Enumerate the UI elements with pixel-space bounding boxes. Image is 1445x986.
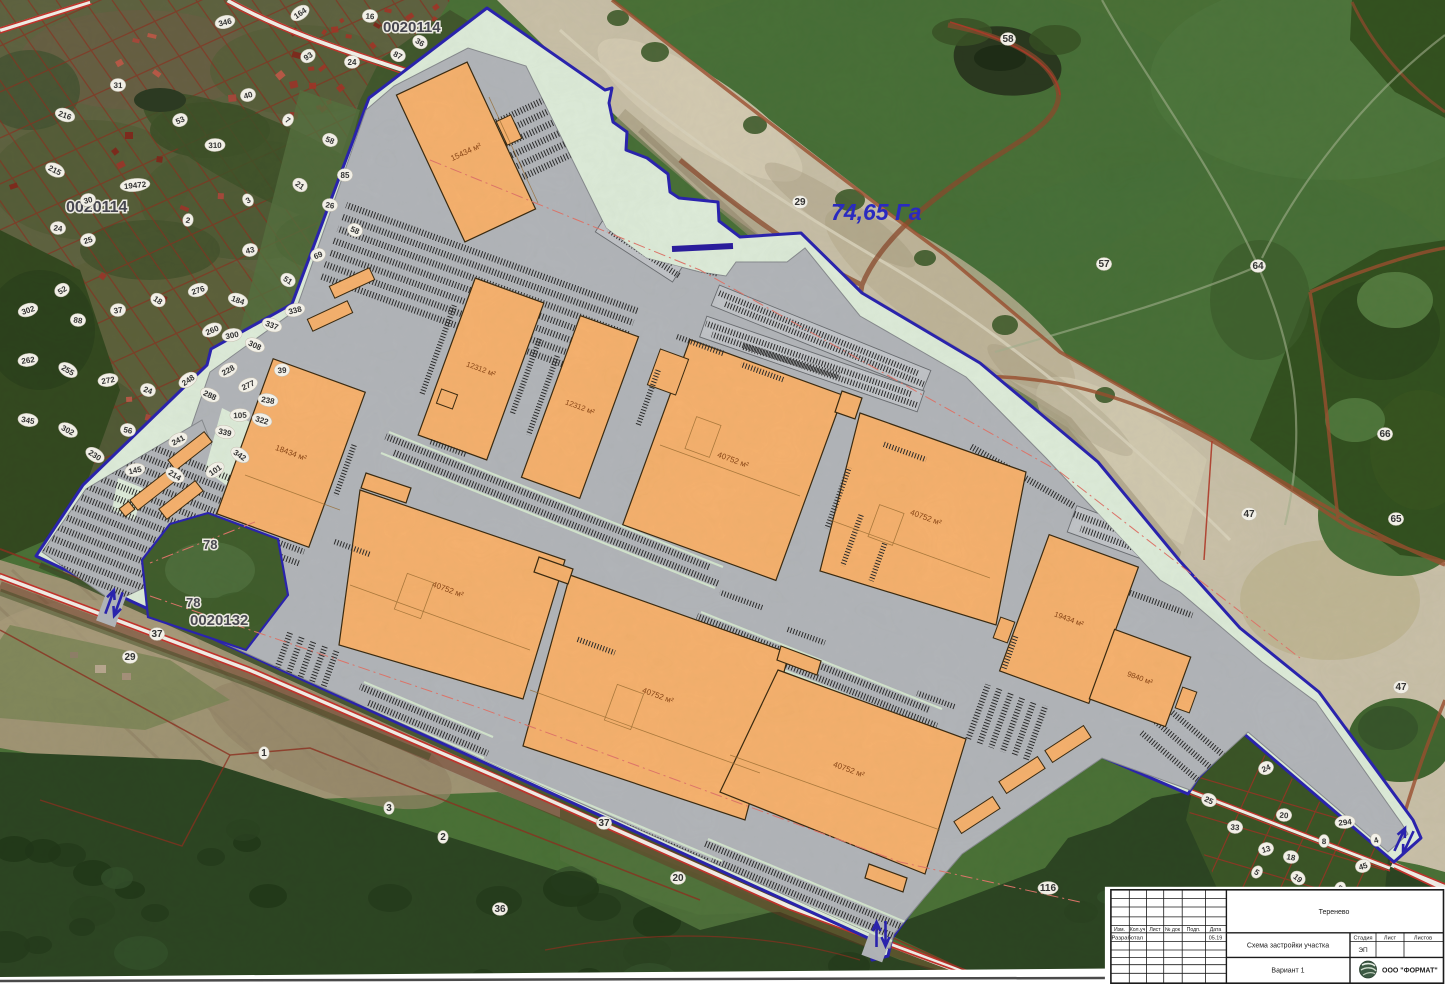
- svg-text:Изм.: Изм.: [1114, 927, 1125, 933]
- svg-text:Кол.уч: Кол.уч: [1130, 927, 1146, 933]
- svg-text:Схема застройки участка: Схема застройки участка: [1247, 942, 1329, 950]
- svg-text:Вариант 1: Вариант 1: [1271, 968, 1304, 975]
- svg-text:Стадия: Стадия: [1353, 936, 1372, 942]
- svg-text:ЭП: ЭП: [1358, 947, 1368, 954]
- svg-text:Разработал: Разработал: [1112, 936, 1144, 942]
- svg-text:Теренево: Теренево: [1319, 909, 1350, 916]
- svg-text:Дата: Дата: [1210, 927, 1222, 933]
- svg-text:Лист: Лист: [1384, 936, 1397, 942]
- svg-text:№ док: № док: [1165, 927, 1181, 933]
- svg-text:Подп.: Подп.: [1187, 927, 1201, 933]
- svg-text:ООО "ФОРМАТ": ООО "ФОРМАТ": [1382, 968, 1438, 975]
- svg-text:Листов: Листов: [1414, 936, 1432, 942]
- svg-text:Лист: Лист: [1149, 927, 1161, 933]
- svg-text:05.19: 05.19: [1209, 936, 1223, 942]
